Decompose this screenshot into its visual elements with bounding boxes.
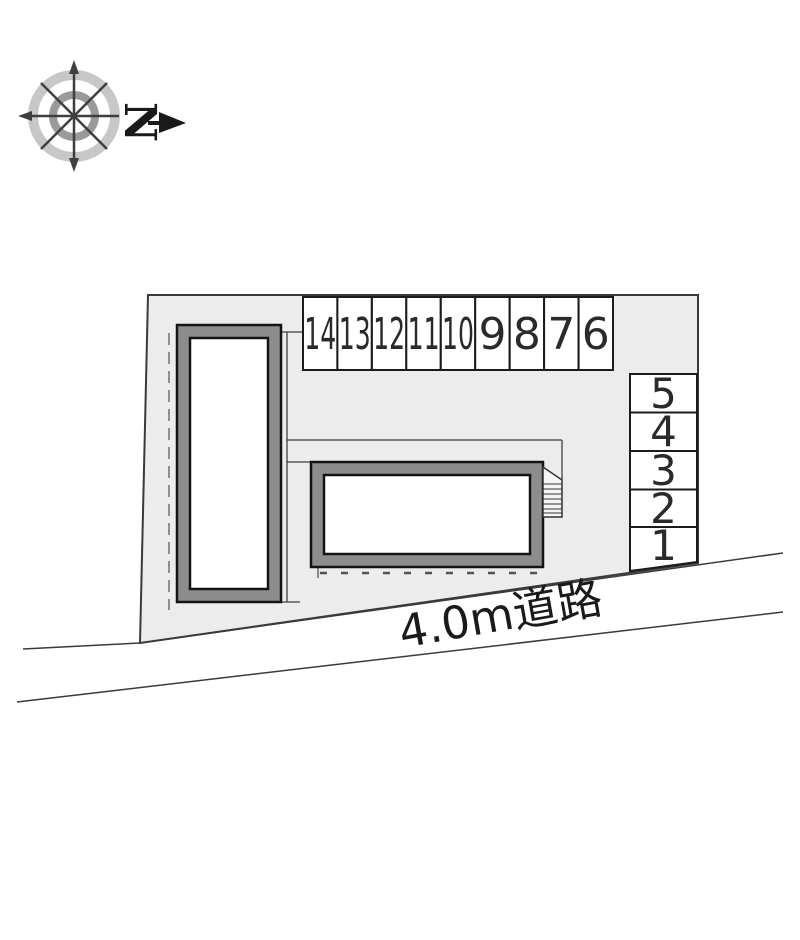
parking-stall: 11 <box>406 297 440 370</box>
parking-stall: 10 <box>441 297 475 370</box>
parking-stall: 9 <box>475 297 509 370</box>
building-left <box>177 325 281 602</box>
parking-stall-number: 9 <box>479 309 507 360</box>
parking-stall: 7 <box>544 297 578 370</box>
site-plan-page: 14 13 12 11 10 9 8 7 <box>0 0 800 940</box>
parking-stall: 6 <box>579 297 613 370</box>
parking-stall-number: 12 <box>373 309 405 360</box>
parking-stall: 12 <box>372 297 406 370</box>
building-center-interior <box>324 475 530 554</box>
parking-stall: 8 <box>510 297 544 370</box>
building-left-interior <box>190 338 268 589</box>
site-plan-svg: 14 13 12 11 10 9 8 7 <box>0 0 800 940</box>
building-center <box>311 462 543 567</box>
parking-stall-number: 14 <box>304 309 336 360</box>
parking-stall: 14 <box>303 297 337 370</box>
parking-stall-number: 6 <box>582 309 610 360</box>
parking-stall: 1 <box>630 521 697 571</box>
parking-row-top: 14 13 12 11 10 9 8 7 <box>303 297 613 370</box>
parking-stall-number: 13 <box>339 309 371 360</box>
parking-stall-number: 7 <box>547 309 575 360</box>
parking-column-right: 5 4 3 2 1 <box>630 369 697 571</box>
parking-stall: 13 <box>337 297 371 370</box>
parking-stall-number: 8 <box>513 309 541 360</box>
parking-stall-number: 10 <box>442 309 474 360</box>
parking-stall-number: 1 <box>650 521 677 570</box>
parking-stall-number: 11 <box>408 309 440 360</box>
